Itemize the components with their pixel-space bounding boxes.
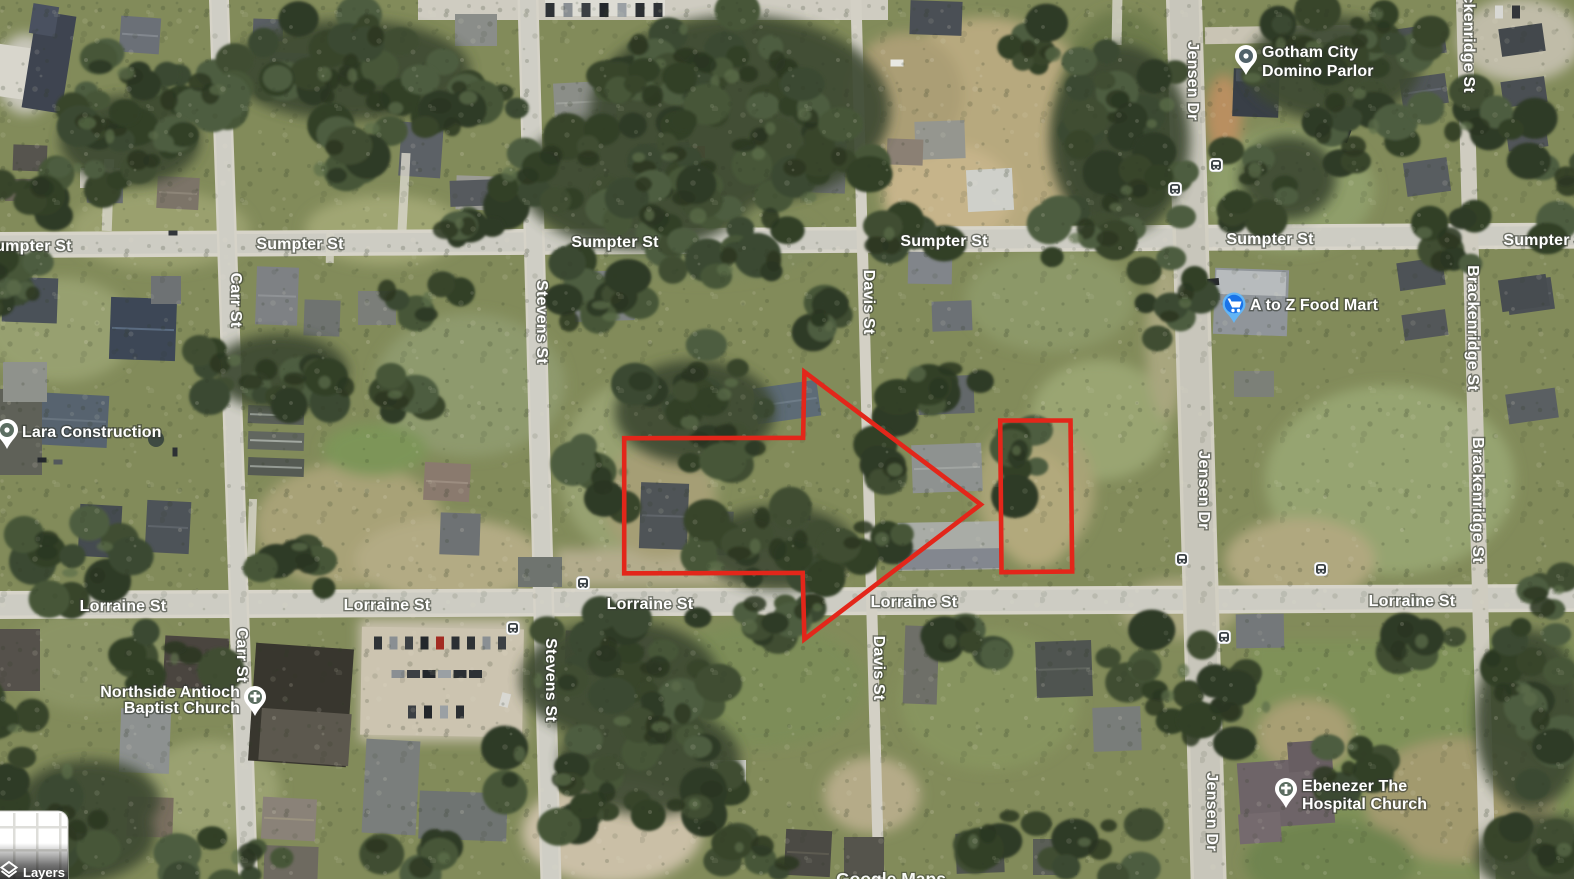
svg-text:Lorraine St: Lorraine St bbox=[1369, 593, 1456, 610]
svg-text:Domino Parlor: Domino Parlor bbox=[1262, 63, 1374, 80]
svg-text:Jensen Dr: Jensen Dr bbox=[1195, 450, 1212, 529]
svg-text:Lorraine St: Lorraine St bbox=[80, 598, 167, 615]
svg-text:Layers: Layers bbox=[23, 865, 65, 879]
svg-text:Davis St: Davis St bbox=[860, 270, 877, 335]
svg-text:Jensen Dr: Jensen Dr bbox=[1184, 41, 1201, 120]
svg-text:Stevens St: Stevens St bbox=[533, 280, 550, 364]
svg-text:Lorraine St: Lorraine St bbox=[607, 596, 694, 613]
svg-text:Ebenezer The: Ebenezer The bbox=[1302, 778, 1407, 795]
svg-text:Carr St: Carr St bbox=[227, 273, 244, 328]
svg-text:Brackenridge St: Brackenridge St bbox=[1469, 437, 1486, 563]
svg-text:Hospital Church: Hospital Church bbox=[1302, 796, 1427, 813]
svg-text:Stevens St: Stevens St bbox=[542, 638, 559, 722]
svg-text:Davis St: Davis St bbox=[870, 636, 887, 701]
svg-text:Lara Construction: Lara Construction bbox=[22, 424, 162, 441]
svg-text:Lorraine St: Lorraine St bbox=[344, 597, 431, 614]
svg-text:A to Z Food Mart: A to Z Food Mart bbox=[1250, 297, 1379, 314]
svg-text:Gotham City: Gotham City bbox=[1262, 44, 1358, 61]
svg-text:Brackenridge St: Brackenridge St bbox=[1464, 265, 1481, 391]
svg-text:Sumpter St: Sumpter St bbox=[256, 236, 344, 253]
svg-text:Sumpter St: Sumpter St bbox=[1226, 231, 1314, 248]
svg-text:Sumpter St: Sumpter St bbox=[571, 234, 659, 251]
svg-text:Brackenridge St: Brackenridge St bbox=[1460, 0, 1477, 93]
svg-text:Northside Antioch: Northside Antioch bbox=[100, 684, 240, 701]
svg-text:Carr St: Carr St bbox=[233, 628, 250, 683]
svg-text:Sumpter St: Sumpter St bbox=[0, 238, 72, 255]
svg-text:Sumpter St: Sumpter St bbox=[1503, 232, 1574, 249]
svg-text:Google Maps: Google Maps bbox=[836, 869, 946, 879]
svg-text:Sumpter St: Sumpter St bbox=[900, 233, 988, 250]
svg-text:Jensen Dr: Jensen Dr bbox=[1203, 772, 1220, 851]
svg-text:Lorraine St: Lorraine St bbox=[871, 594, 958, 611]
svg-text:Baptist Church: Baptist Church bbox=[124, 700, 240, 717]
